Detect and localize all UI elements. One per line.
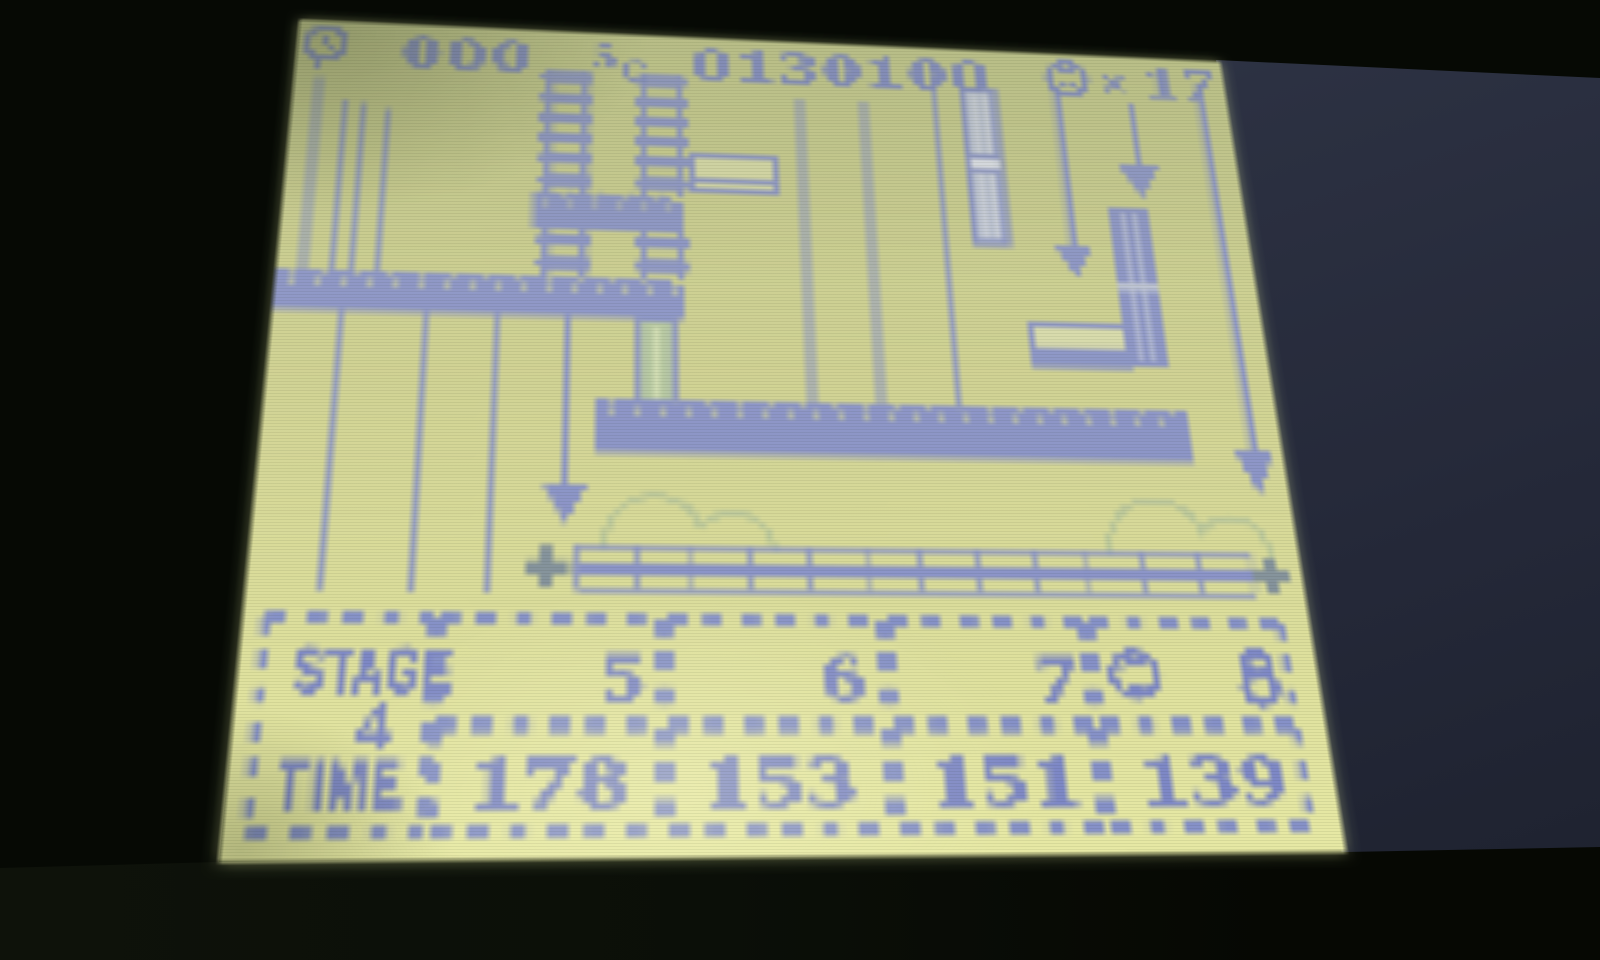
svg-text:TIME: TIME: [274, 747, 407, 824]
svg-text:178: 178: [467, 742, 632, 823]
svg-text:153: 153: [700, 742, 860, 822]
svg-text:17: 17: [1140, 59, 1222, 110]
svg-text:000: 000: [400, 26, 536, 82]
svg-text:6: 6: [819, 640, 867, 715]
svg-text:139: 139: [1135, 741, 1294, 818]
svg-text:C: C: [621, 54, 649, 89]
svg-text:5: 5: [594, 37, 617, 77]
svg-text:5: 5: [600, 639, 646, 715]
svg-text:151: 151: [926, 742, 1086, 820]
svg-text:7: 7: [1032, 641, 1082, 715]
